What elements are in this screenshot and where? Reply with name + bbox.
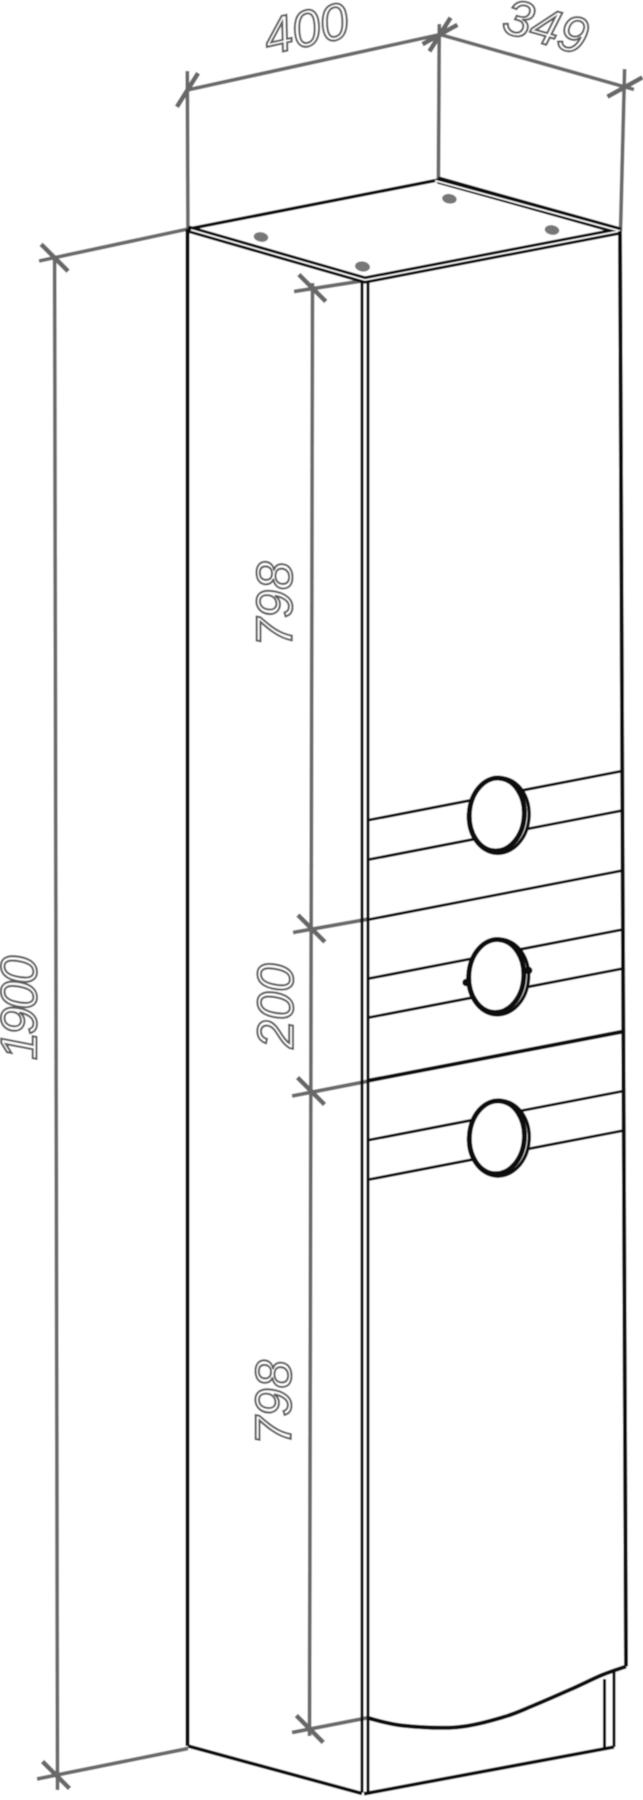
svg-text:798: 798 <box>246 561 303 647</box>
svg-text:200: 200 <box>247 963 304 1049</box>
svg-text:1900: 1900 <box>0 956 48 1060</box>
svg-text:798: 798 <box>245 1359 302 1445</box>
